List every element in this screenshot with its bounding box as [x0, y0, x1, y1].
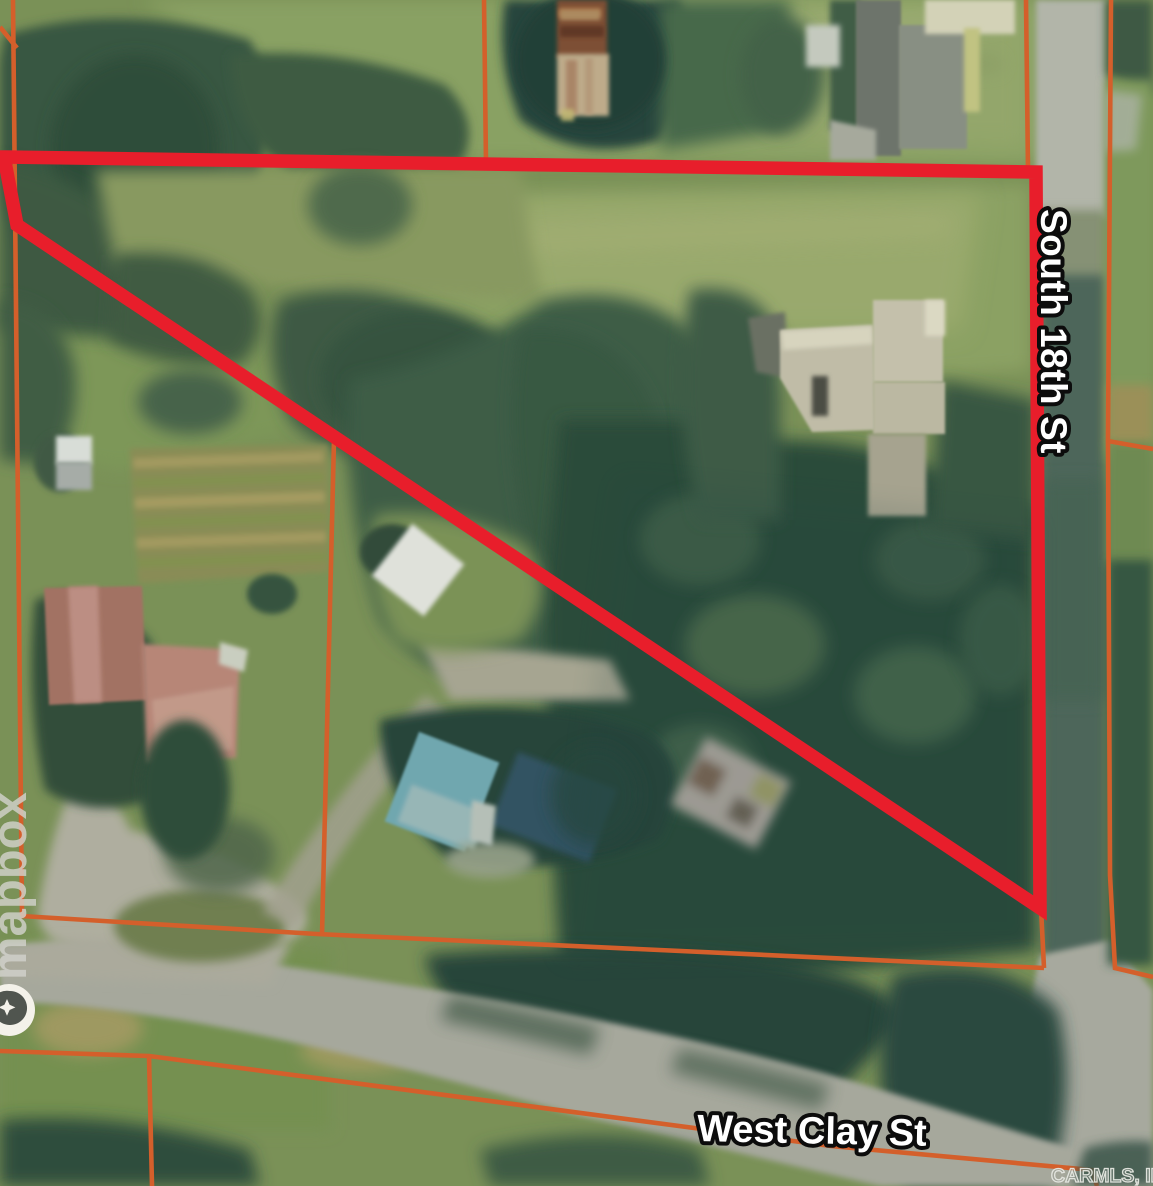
svg-text:mapbox: mapbox	[0, 792, 37, 980]
svg-text:South 18th St: South 18th St	[1033, 209, 1074, 454]
svg-text:West Clay St: West Clay St	[697, 1108, 928, 1155]
svg-text:CARMLS, INC: CARMLS, INC	[1051, 1165, 1153, 1186]
